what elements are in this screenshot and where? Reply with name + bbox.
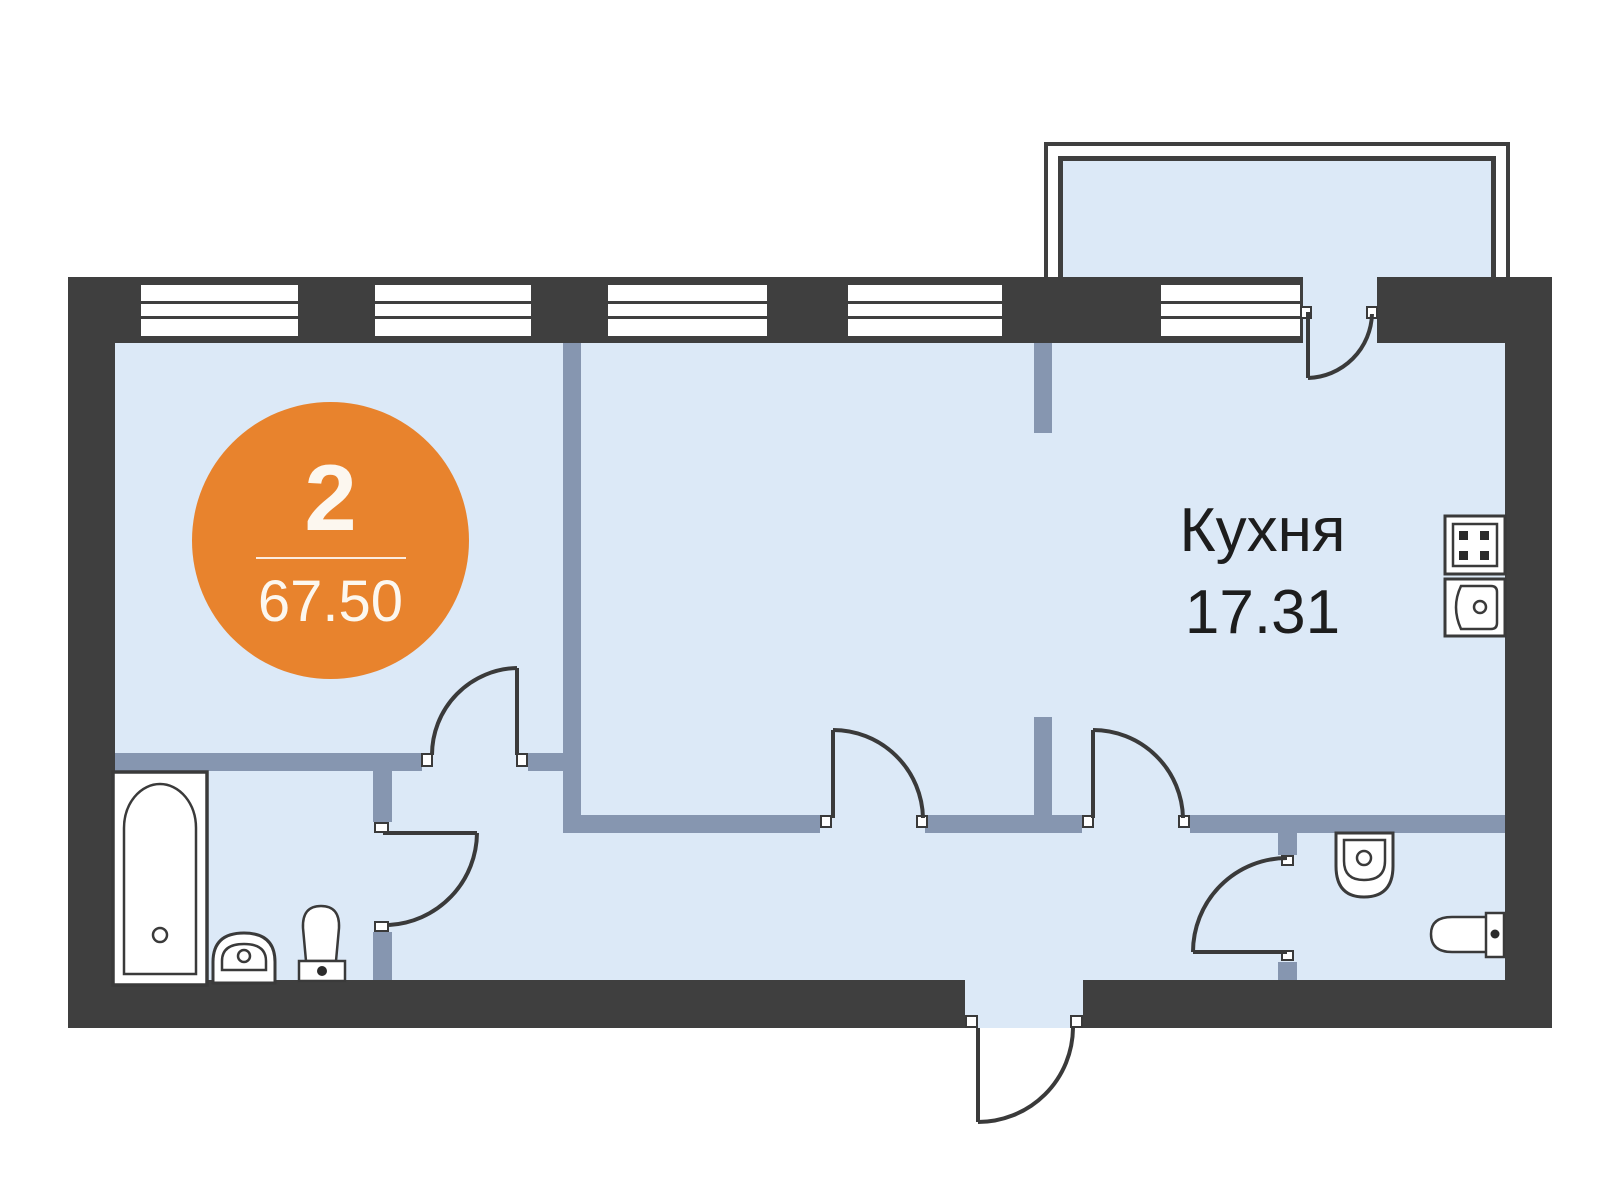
kitchen-door-arc-2 xyxy=(1093,730,1183,818)
floor-plan: 2 67.50 Кухня 17.31 xyxy=(0,0,1600,1200)
kitchen-sink xyxy=(1445,579,1505,636)
bathroom-door-arc-right xyxy=(1193,858,1287,952)
badge-divider xyxy=(256,557,406,559)
toilet-right xyxy=(1431,913,1504,957)
bathroom-door-arc-left xyxy=(383,833,477,925)
living-room-door-arc xyxy=(432,668,517,755)
kitchen-area: 17.31 xyxy=(1090,572,1435,654)
entrance-door-arc xyxy=(978,1028,1073,1122)
pedestal-sink xyxy=(213,933,275,983)
room-count-badge: 2 67.50 xyxy=(192,402,469,679)
room-label-kitchen: Кухня 17.31 xyxy=(1090,490,1435,655)
kitchen-name: Кухня xyxy=(1090,490,1435,572)
stove xyxy=(1445,516,1505,574)
balcony-door-arc xyxy=(1308,312,1372,378)
bathtub xyxy=(113,772,207,985)
wall-sink xyxy=(1336,833,1393,897)
room-count: 2 xyxy=(304,451,356,545)
kitchen-door-arc-1 xyxy=(833,730,923,818)
toilet-left xyxy=(299,906,345,981)
total-area: 67.50 xyxy=(258,573,403,631)
